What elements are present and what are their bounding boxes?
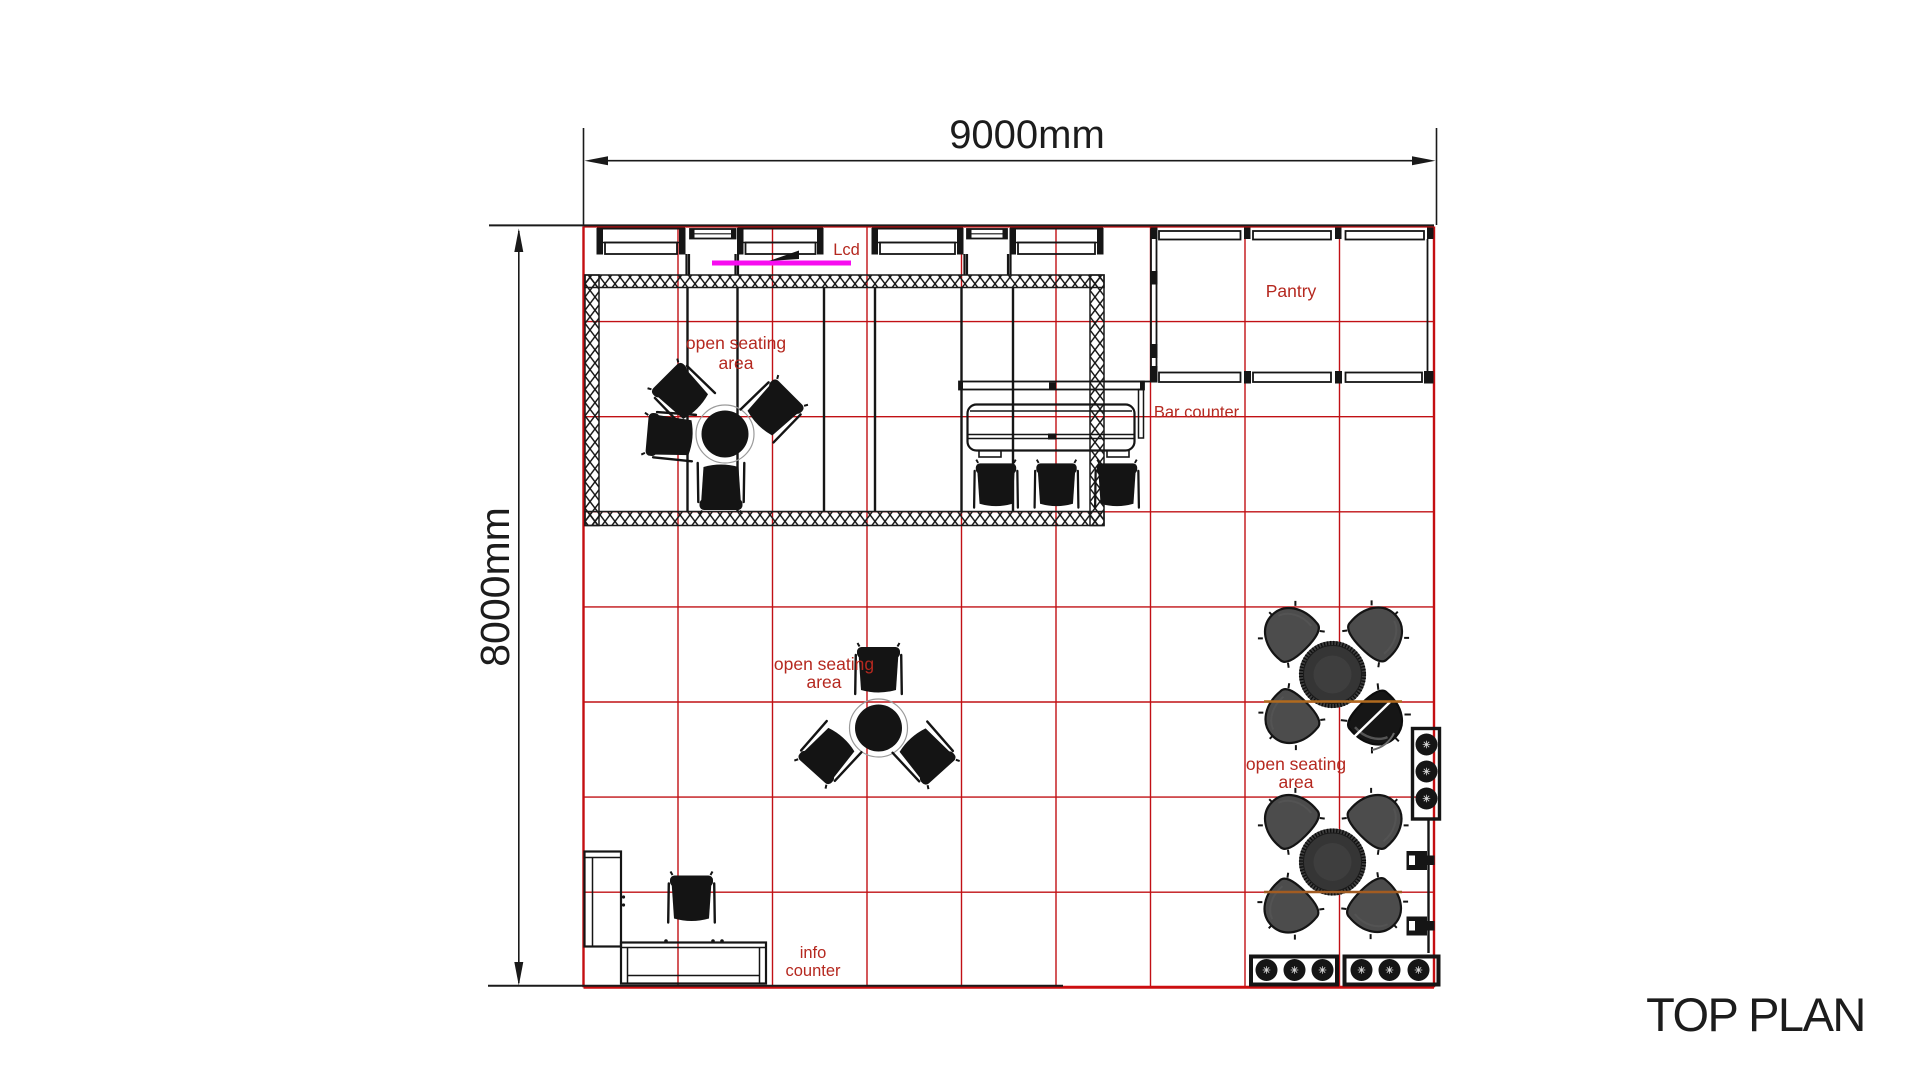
svg-text:open seating: open seating [774,654,874,674]
svg-text:counter: counter [785,962,841,980]
svg-text:open seating: open seating [686,333,786,353]
svg-text:TOP PLAN: TOP PLAN [1646,988,1865,1041]
svg-text:9000mm: 9000mm [949,113,1105,157]
svg-text:area: area [718,353,753,373]
svg-text:Lcd: Lcd [833,241,860,259]
svg-text:Pantry: Pantry [1266,281,1317,301]
svg-text:open seating: open seating [1246,754,1346,774]
svg-text:8000mm: 8000mm [472,507,518,667]
svg-text:info: info [800,944,827,962]
svg-text:Bar counter: Bar counter [1154,404,1240,422]
svg-text:area: area [806,672,841,692]
